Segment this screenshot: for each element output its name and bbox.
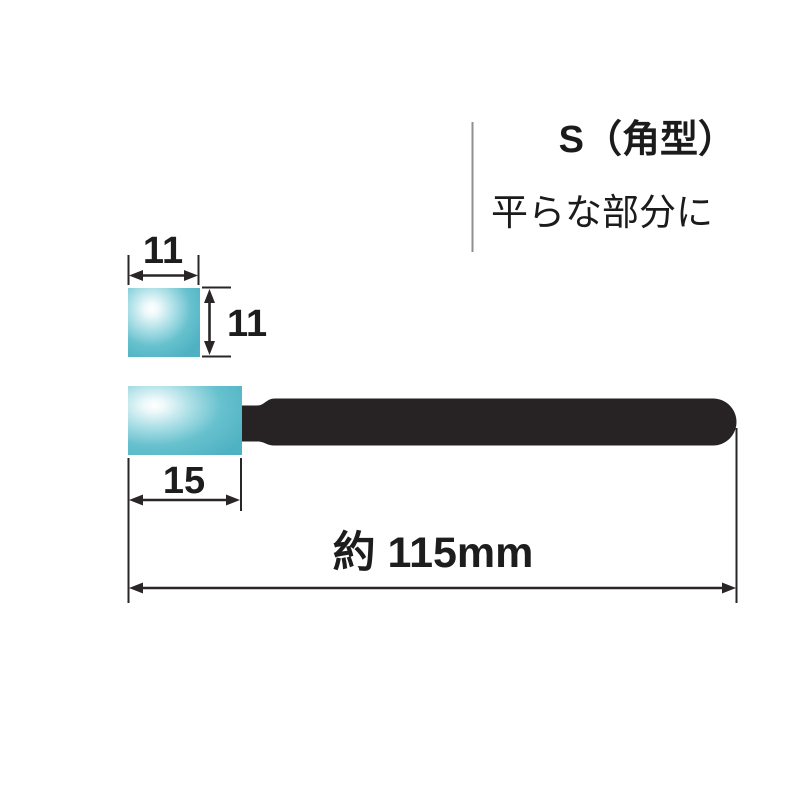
arrowhead-right [722, 583, 736, 594]
diagram-canvas: S（角型） 平らな部分に 11 11 [0, 0, 801, 801]
arrowhead-right [226, 495, 240, 506]
arrowhead-left [129, 270, 143, 281]
arrowhead-right [184, 270, 198, 281]
dim-tip-width: 11 [129, 230, 199, 285]
product-type-title: S（角型） [559, 119, 736, 161]
arrowhead-bottom [204, 341, 215, 355]
dim-tip-height: 11 [202, 288, 267, 357]
product-usage-subtitle: 平らな部分に [491, 192, 713, 233]
dim-label-tip-height: 11 [227, 303, 267, 345]
arrowhead-top [204, 289, 215, 303]
dim-label-tip-length: 15 [163, 460, 205, 502]
dim-label-tip-width: 11 [143, 230, 183, 272]
swab-side-view: 15 約 115mm [128, 386, 737, 603]
handle [242, 399, 737, 446]
tip-front-view: 11 11 [128, 230, 267, 357]
tip-front-square [128, 288, 200, 357]
product-spec-figure: S（角型） 平らな部分に 11 11 [0, 0, 801, 801]
dim-tip-length: 15 [129, 458, 242, 603]
arrowhead-left [129, 495, 143, 506]
dim-label-total-length: 約 115mm [333, 529, 534, 577]
tip-side-rect [128, 386, 242, 455]
header: S（角型） 平らな部分に [473, 119, 737, 252]
arrowhead-left [129, 583, 143, 594]
